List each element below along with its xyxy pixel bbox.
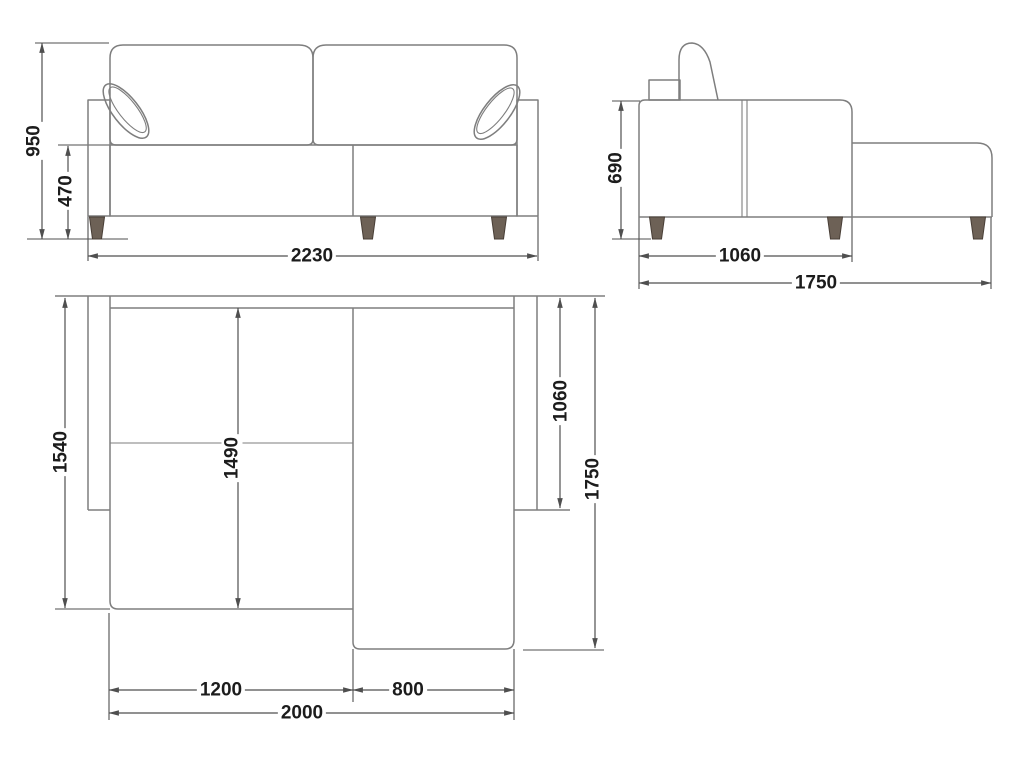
front-seat-base [110,145,517,216]
front-leg-middle [361,217,376,239]
front-right-pillow [466,78,527,146]
plan-depth-left-label: 1540 [51,428,72,476]
technical-drawing-canvas [0,0,1024,768]
front-left-armrest [88,100,110,216]
side-view [612,43,992,289]
side-armrest-top [649,80,680,100]
front-back-cushion-right [313,45,517,145]
side-body-depth-label: 1060 [716,246,764,267]
front-back-cushion-left [110,45,313,145]
side-chaise-outline [852,143,992,217]
front-right-armrest [517,100,538,216]
side-leg-right [971,217,986,239]
front-left-pillow [95,77,156,145]
front-leg-right [492,217,507,239]
plan-depth-total-label: 1750 [583,455,604,503]
side-total-depth-label: 1750 [792,273,840,294]
front-view [27,43,538,261]
side-leg-left [650,217,665,239]
plan-width-total-label: 2000 [278,703,326,724]
plan-view [55,296,605,720]
front-height-label: 950 [24,122,45,160]
front-width-label: 2230 [288,246,336,267]
sofa-dimension-drawing: 950 470 2230 690 1060 1750 1540 1490 106… [0,0,1024,768]
side-body-outline [639,100,852,217]
side-leg-middle [828,217,843,239]
plan-depth-seat-label: 1490 [222,434,243,482]
side-height-label: 690 [606,149,627,187]
plan-depth-body-label: 1060 [551,377,572,425]
front-seat-height-label: 470 [56,172,77,210]
plan-width-chaise-label: 800 [389,680,427,701]
plan-chaise-outline [353,296,514,649]
side-back-pillow [679,43,718,100]
plan-width-seat-label: 1200 [197,680,245,701]
front-leg-left [90,217,105,239]
